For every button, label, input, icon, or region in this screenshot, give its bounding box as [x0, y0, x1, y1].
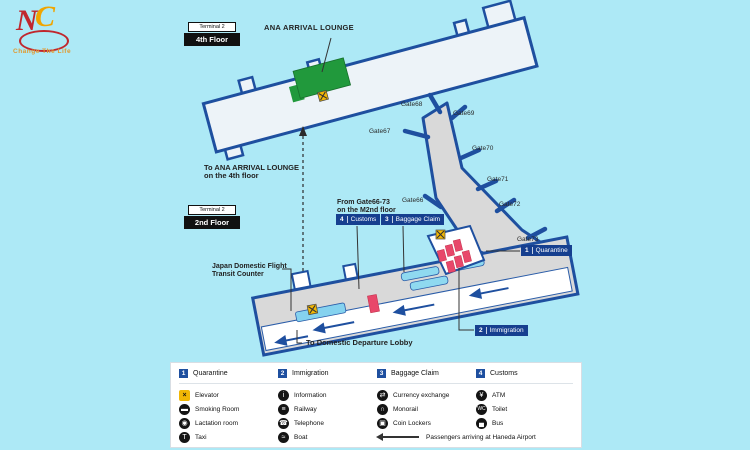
gate67-label: Gate67: [369, 128, 390, 135]
information-icon: i: [278, 390, 289, 401]
baggage-leader: [403, 226, 404, 272]
legend-item-bus: ▄ Bus: [476, 418, 575, 429]
gate69-label: Gate69: [453, 110, 474, 117]
customs-badge: 4 Customs: [336, 214, 380, 225]
gate72-label: Gate72: [499, 201, 520, 208]
quarantine-badge: 1 Quarantine: [521, 245, 572, 256]
toilet-icon: WC: [476, 404, 487, 415]
left-arrow-icon: [383, 436, 419, 438]
floor4-building-group: [198, 0, 539, 162]
legend-header-immigration: 2 Immigration: [278, 369, 377, 378]
bus-icon: ▄: [476, 418, 487, 429]
from-gates-label: From Gate66-73 on the M2nd floor: [337, 199, 396, 215]
elevator-icon: [307, 304, 318, 315]
coin-lockers-icon: ▣: [377, 418, 388, 429]
floor4-terminal-chip: Terminal 2: [188, 22, 236, 32]
legend-divider: [179, 383, 573, 384]
legend-item-taxi: T Taxi: [179, 432, 278, 443]
elevator-icon: [436, 230, 445, 239]
gate66-label: Gate66: [402, 197, 423, 204]
currency-exchange-icon: ⇄: [377, 390, 388, 401]
boat-icon: ≈: [278, 432, 289, 443]
monorail-icon: ∩: [377, 404, 388, 415]
legend-header-baggage-claim: 3 Baggage Claim: [377, 369, 476, 378]
lactation-room-icon: ◉: [179, 418, 190, 429]
map-legend: 1 Quarantine 2 Immigration 3 Baggage Cla…: [170, 362, 582, 448]
legend-item-coin-lockers: ▣ Coin Lockers: [377, 418, 476, 429]
legend-item-information: i Information: [278, 390, 377, 401]
baggage-claim-badge: 3 Baggage Claim: [381, 214, 444, 225]
legend-item-currency-exchange: ⇄ Currency exchange: [377, 390, 476, 401]
gate68-label: Gate68: [401, 101, 422, 108]
gate71-label: Gate71: [487, 176, 508, 183]
floor4-chip: Terminal 2 4th Floor: [184, 22, 240, 46]
haneda-terminal2-map-page: N C Change The Life: [0, 0, 750, 450]
legend-item-elevator: × Elevator: [179, 390, 278, 401]
number-2-icon: 2: [278, 369, 287, 378]
legend-arrow-note: Passengers arriving at Haneda Airport: [377, 434, 575, 441]
elevator-icon: ×: [179, 390, 190, 401]
elevator-icon: [317, 90, 328, 101]
immigration-badge: 2 Immigration: [475, 325, 528, 336]
floor2-floor-chip: 2nd Floor: [184, 216, 240, 229]
number-4-icon: 4: [476, 369, 485, 378]
railway-icon: ≡: [278, 404, 289, 415]
atm-icon: ¥: [476, 390, 487, 401]
legend-items-grid: × Elevator i Information ⇄ Currency exch…: [179, 388, 573, 444]
number-3-icon: 3: [377, 369, 386, 378]
legend-item-atm: ¥ ATM: [476, 390, 575, 401]
legend-header-quarantine: 1 Quarantine: [179, 369, 278, 378]
transit-counter-label: Japan Domestic Flight Transit Counter: [212, 263, 287, 279]
legend-item-railway: ≡ Railway: [278, 404, 377, 415]
ana-arrival-lounge-label: ANA ARRIVAL LOUNGE: [264, 24, 354, 32]
telephone-icon: ☎: [278, 418, 289, 429]
gate73-label: Gate73: [517, 236, 538, 243]
floor4-floor-chip: 4th Floor: [184, 33, 240, 46]
smoking-room-icon: ▬: [179, 404, 190, 415]
to-domestic-lobby-label: To Domestic Departure Lobby: [306, 339, 413, 347]
legend-item-telephone: ☎ Telephone: [278, 418, 377, 429]
legend-item-lactation-room: ◉ Lactation room: [179, 418, 278, 429]
gate70-label: Gate70: [472, 145, 493, 152]
legend-header-customs: 4 Customs: [476, 369, 575, 378]
legend-header-row: 1 Quarantine 2 Immigration 3 Baggage Cla…: [179, 369, 573, 378]
floor2-terminal-chip: Terminal 2: [188, 205, 236, 215]
legend-item-boat: ≈ Boat: [278, 432, 377, 443]
number-1-icon: 1: [179, 369, 188, 378]
legend-item-monorail: ∩ Monorail: [377, 404, 476, 415]
to-ana-lounge-label: To ANA ARRIVAL LOUNGE on the 4th floor: [204, 164, 299, 180]
legend-item-toilet: WC Toilet: [476, 404, 575, 415]
legend-item-smoking-room: ▬ Smoking Room: [179, 404, 278, 415]
taxi-icon: T: [179, 432, 190, 443]
floor2-chip: Terminal 2 2nd Floor: [184, 205, 240, 229]
